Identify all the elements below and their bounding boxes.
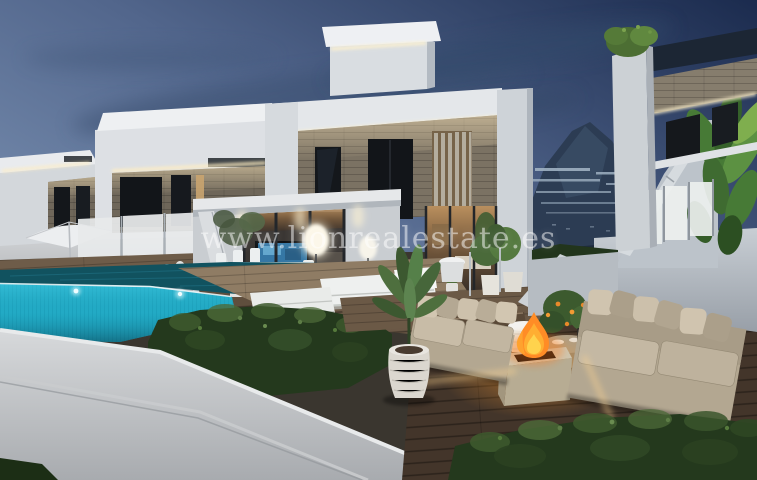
ribbed-pot xyxy=(383,344,435,406)
render-canvas xyxy=(0,0,757,480)
dining-chair xyxy=(250,248,260,264)
window xyxy=(54,187,70,227)
lit-window-blinds xyxy=(432,131,472,217)
villa-render-image: www.lionrealestate.es xyxy=(0,0,757,480)
roof-railing xyxy=(64,156,92,162)
wall-art xyxy=(432,224,449,245)
window xyxy=(712,102,738,147)
side-table xyxy=(439,257,465,282)
